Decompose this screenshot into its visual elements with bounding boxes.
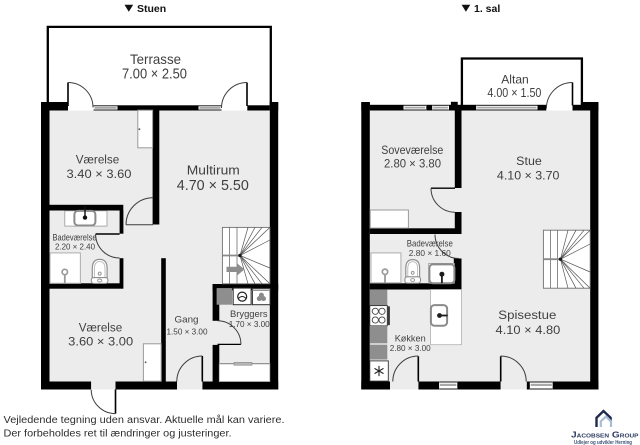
- svg-text:Der forbeholdes ret til ændrin: Der forbeholdes ret til ændringer og jus…: [4, 428, 232, 439]
- svg-text:Vejledende tegning uden ansvar: Vejledende tegning uden ansvar. Aktuelle…: [4, 415, 285, 426]
- svg-text:Værelse: Værelse: [79, 321, 123, 335]
- svg-text:Jacobsen Group: Jacobsen Group: [571, 431, 639, 440]
- svg-text:1.70 × 3.00: 1.70 × 3.00: [229, 319, 270, 329]
- svg-text:Udlejer og udvikler Herning: Udlejer og udvikler Herning: [574, 440, 632, 445]
- svg-text:4.10 × 4.80: 4.10 × 4.80: [496, 323, 561, 337]
- svg-text:Spisestue: Spisestue: [498, 308, 556, 322]
- svg-text:Gang: Gang: [175, 313, 199, 324]
- svg-text:2.80 × 3.00: 2.80 × 3.00: [390, 343, 431, 353]
- svg-text:Badeværelse: Badeværelse: [407, 238, 453, 249]
- svg-text:Stuen: Stuen: [137, 3, 166, 15]
- svg-text:4.10 × 3.70: 4.10 × 3.70: [497, 168, 560, 182]
- svg-text:2.80 × 1.60: 2.80 × 1.60: [409, 248, 451, 258]
- svg-text:Multirum: Multirum: [187, 163, 240, 178]
- svg-text:Terrasse: Terrasse: [130, 51, 181, 67]
- svg-text:2.20 × 2.40: 2.20 × 2.40: [55, 242, 95, 252]
- svg-text:Køkken: Køkken: [395, 332, 426, 343]
- svg-text:Værelse: Værelse: [76, 153, 120, 167]
- svg-text:Altan: Altan: [501, 73, 529, 87]
- svg-text:Stue: Stue: [516, 154, 542, 168]
- svg-text:1.50 × 3.00: 1.50 × 3.00: [167, 326, 208, 336]
- svg-text:1. sal: 1. sal: [474, 3, 500, 15]
- svg-text:3.40 × 3.60: 3.40 × 3.60: [67, 167, 132, 181]
- svg-text:4.00 × 1.50: 4.00 × 1.50: [487, 86, 541, 100]
- svg-text:Soveværelse: Soveværelse: [381, 143, 443, 157]
- svg-text:Bryggers: Bryggers: [230, 308, 268, 319]
- svg-text:3.60 × 3.00: 3.60 × 3.00: [68, 335, 133, 349]
- svg-text:7.00 × 2.50: 7.00 × 2.50: [122, 67, 187, 83]
- svg-text:Badeværelse: Badeværelse: [53, 231, 97, 242]
- svg-text:2.80 × 3.80: 2.80 × 3.80: [384, 156, 441, 170]
- svg-text:4.70 × 5.50: 4.70 × 5.50: [177, 178, 249, 194]
